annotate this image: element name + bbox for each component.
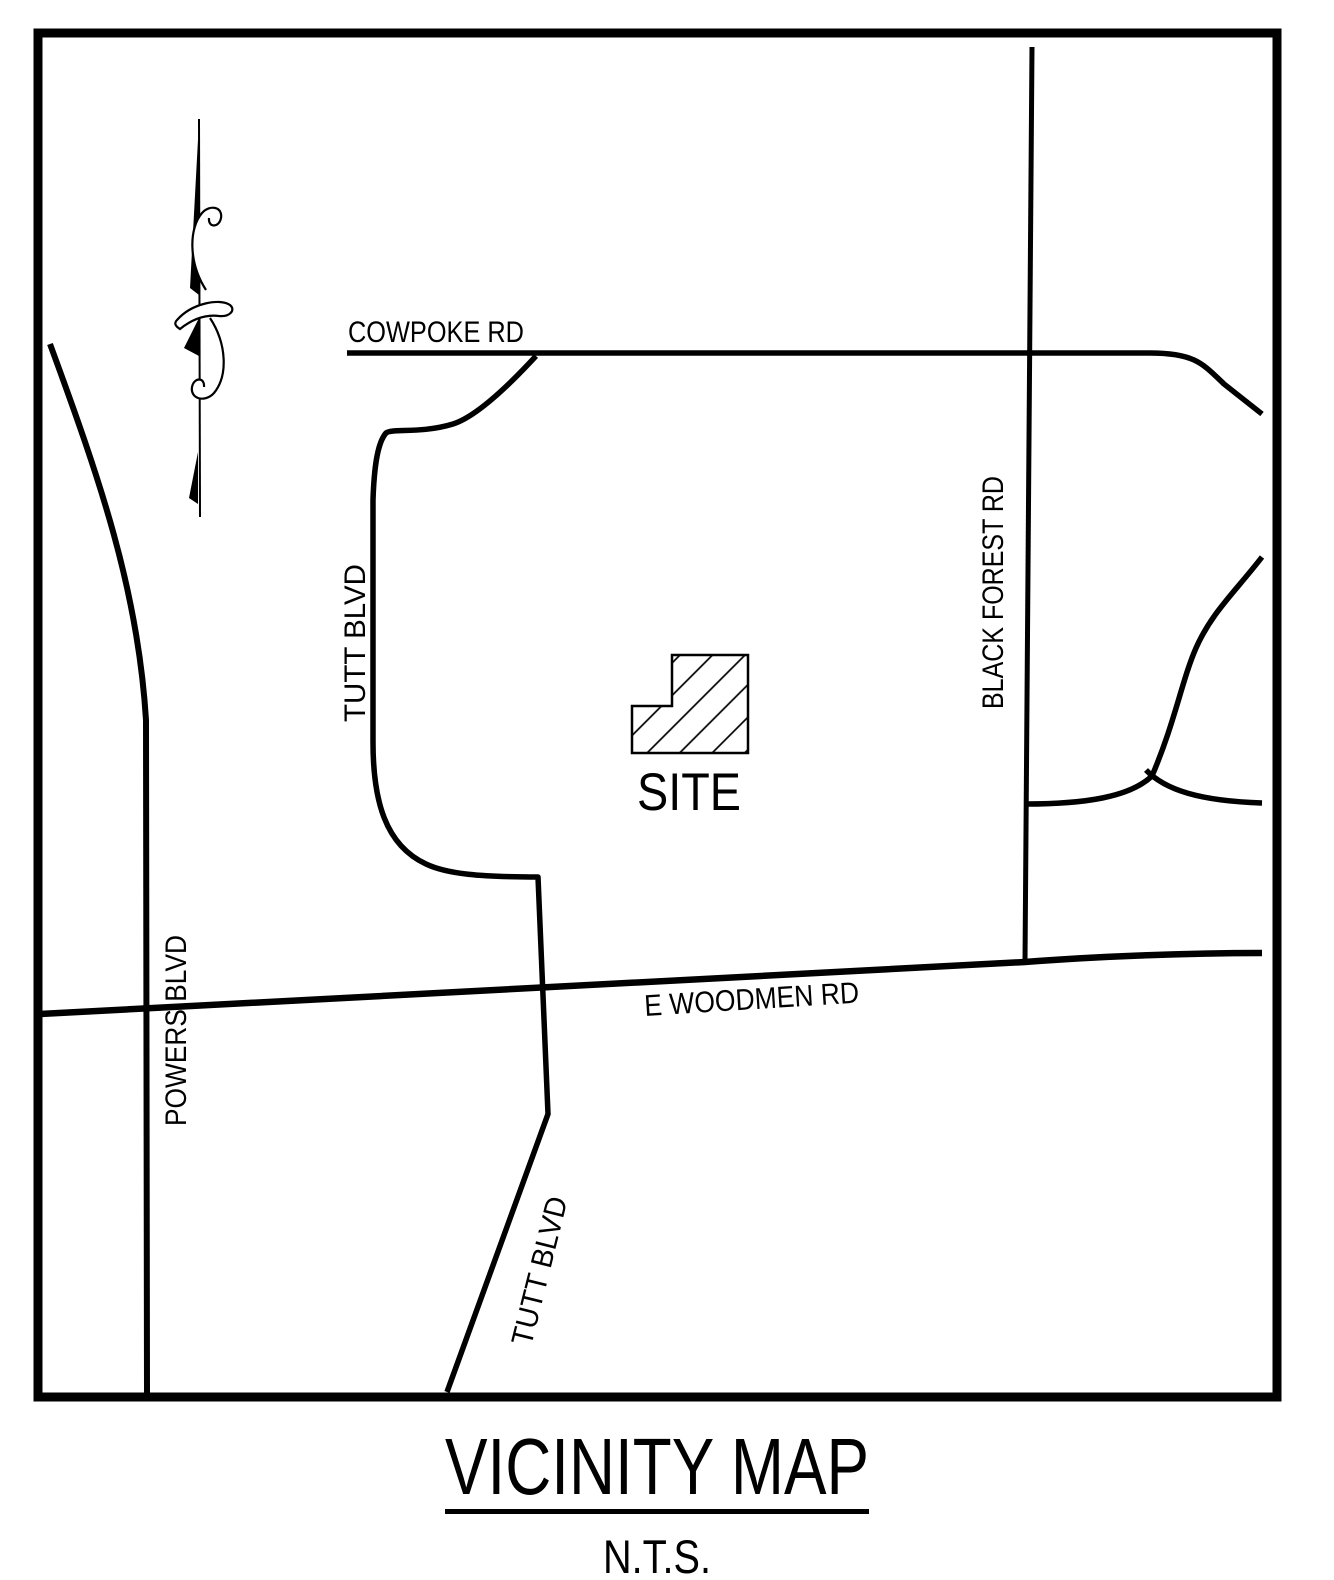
road-powers	[50, 344, 147, 1396]
north-arrow-icon	[175, 119, 232, 517]
road-label-powers: POWERS BLVD	[160, 935, 193, 1126]
road-label-cowpoke: COWPOKE RD	[348, 316, 524, 349]
site-label: SITE	[637, 763, 741, 822]
site-parcel	[632, 655, 748, 753]
road-label-tutt-lower: TUTT BLVD	[506, 1193, 575, 1348]
road-label-black-forest: BLACK FOREST RD	[977, 476, 1010, 709]
vicinity-map-drawing: COWPOKE RD TUTT BLVD BLACK FOREST RD POW…	[0, 0, 1334, 1580]
vicinity-map-sheet: COWPOKE RD TUTT BLVD BLACK FOREST RD POW…	[0, 0, 1334, 1580]
road-right-branch	[1146, 770, 1262, 803]
road-right-s-curve	[1026, 557, 1262, 804]
road-label-tutt-upper: TUTT BLVD	[339, 564, 372, 722]
page-title: VICINITY MAP	[445, 1422, 869, 1511]
road-tutt-blvd	[373, 356, 548, 1392]
title-underline	[445, 1509, 869, 1514]
scale-note: N.T.S.	[603, 1530, 711, 1580]
road-black-forest	[1025, 47, 1032, 962]
